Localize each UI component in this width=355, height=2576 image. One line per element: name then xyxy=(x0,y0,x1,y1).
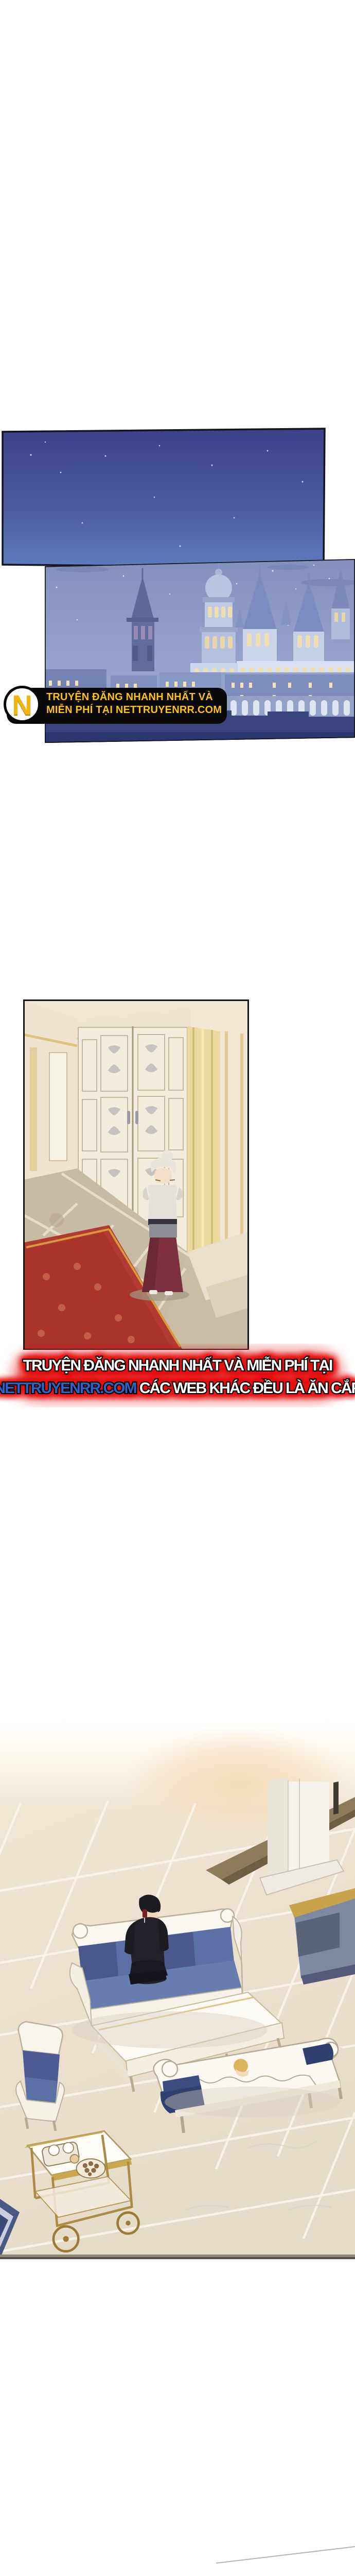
svg-text:NETTRUYENRR.COM CÁC WEB KHÁC Đ: NETTRUYENRR.COM CÁC WEB KHÁC ĐỀU LÀ ĂN C… xyxy=(0,1379,355,1397)
svg-text:TRUYỆN ĐĂNG NHANH NHẤT VÀ MIỄN: TRUYỆN ĐĂNG NHANH NHẤT VÀ MIỄN PHÍ TẠI xyxy=(23,1357,332,1374)
